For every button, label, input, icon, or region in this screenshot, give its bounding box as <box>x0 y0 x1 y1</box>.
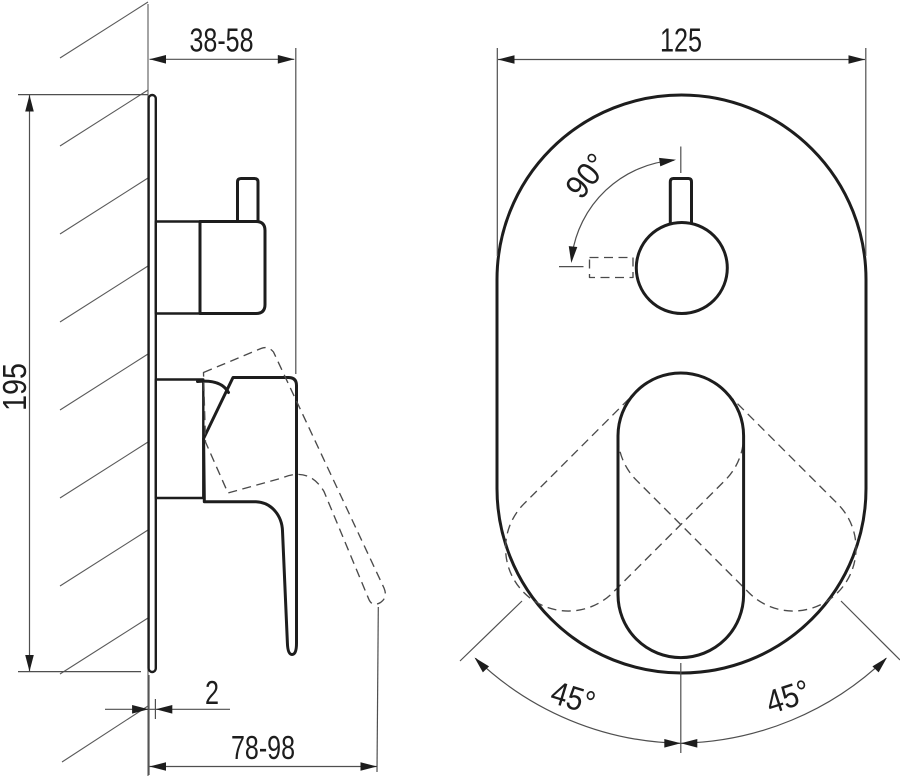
temperature-knob-front <box>636 223 727 314</box>
knob-rotation-label: 90° <box>558 146 616 205</box>
trim-plate-front <box>497 95 866 673</box>
plate-width-label: 125 <box>660 22 702 59</box>
mixer-installation-diagram: 38-58 195 2 78-98 <box>0 0 900 781</box>
lever-outline-side <box>204 378 297 655</box>
valve-body-side <box>156 179 265 314</box>
lever-handle-front <box>618 373 744 658</box>
dim-wall-offset: 38-58 <box>150 22 296 375</box>
side-view: 38-58 195 2 78-98 <box>0 2 385 776</box>
dim-plate-height: 195 <box>0 95 148 672</box>
plate-height-label: 195 <box>0 363 33 411</box>
lever-handle-side-rotated <box>204 348 386 605</box>
lever-swing-left-label: 45° <box>547 673 600 721</box>
knob-stem-front <box>670 179 691 224</box>
handle-depth-label: 78-98 <box>231 729 295 766</box>
valve-base <box>156 222 200 314</box>
lever-handle-side <box>156 378 297 655</box>
technical-drawing: 38-58 195 2 78-98 <box>0 0 900 781</box>
plate-thickness-label: 2 <box>205 674 219 711</box>
wall-offset-label: 38-58 <box>190 22 254 59</box>
front-view: 90° 125 45° 45° <box>460 22 900 754</box>
knob-body-side <box>200 222 265 314</box>
dim-plate-thickness: 2 <box>105 674 230 775</box>
dim-handle-depth: 78-98 <box>150 607 379 772</box>
dim-plate-width: 125 <box>497 22 866 257</box>
knob-stem-side <box>238 179 259 222</box>
lever-base <box>156 380 204 499</box>
wall-hatching <box>60 2 148 776</box>
dim-knob-rotation: 90° <box>558 146 681 266</box>
knob-stem-front-rotated <box>590 258 634 278</box>
dim-lever-swing: 45° 45° <box>460 601 900 753</box>
